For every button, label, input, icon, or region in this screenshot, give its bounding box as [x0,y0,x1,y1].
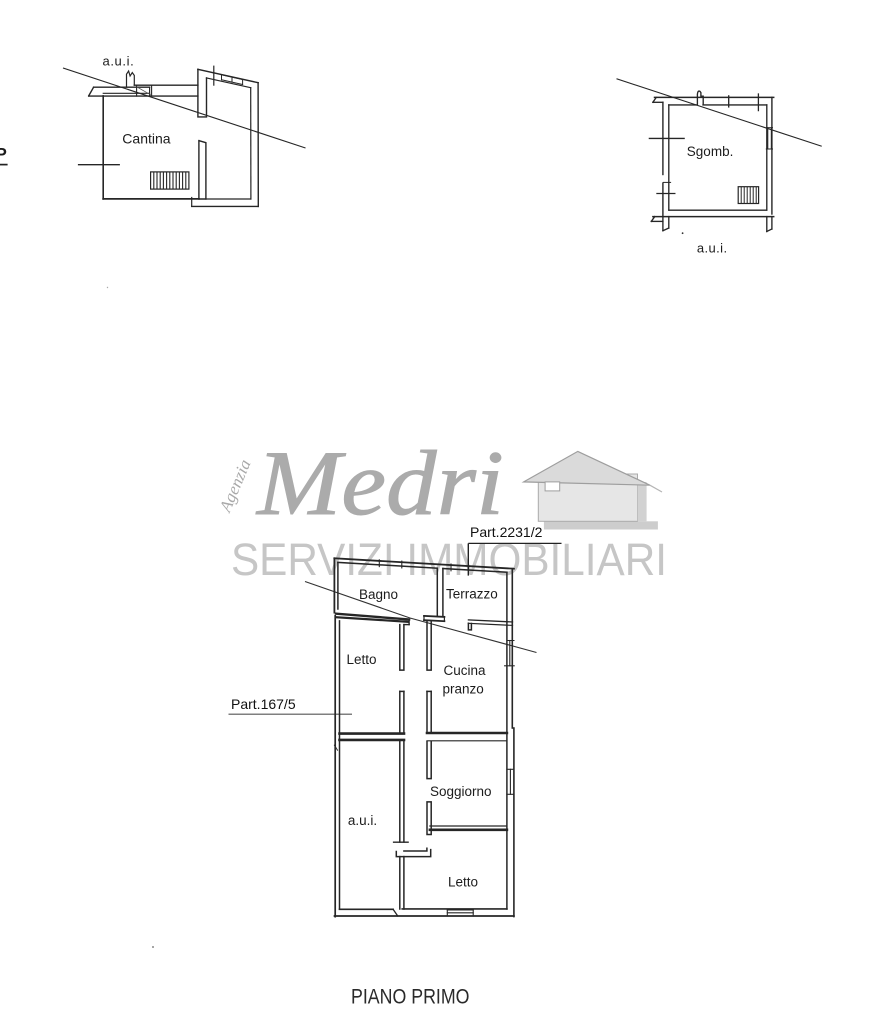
svg-text:P: P [0,145,7,164]
svg-text:Cantina: Cantina [122,131,170,147]
svg-text:pranzo: pranzo [443,682,484,697]
svg-text:Part.167/5: Part.167/5 [231,696,296,712]
svg-text:Part.2231/2: Part.2231/2 [470,524,543,540]
svg-text:a.u.i.: a.u.i. [348,813,377,828]
svg-text:Cucina: Cucina [444,663,487,678]
svg-text:Letto: Letto [347,652,377,667]
svg-text:SERVIZI IMMOBILIARI: SERVIZI IMMOBILIARI [231,534,667,585]
svg-text:a.u.i.: a.u.i. [697,241,728,256]
svg-text:PIANO PRIMO: PIANO PRIMO [351,986,470,1009]
svg-text:Bagno: Bagno [359,587,398,602]
svg-text:Letto: Letto [448,875,478,890]
svg-text:a.u.i.: a.u.i. [103,54,135,69]
svg-text:Terrazzo: Terrazzo [446,587,498,602]
svg-text:Agenzia: Agenzia [215,457,254,516]
svg-text:Soggiorno: Soggiorno [430,784,492,799]
svg-text:Medri: Medri [255,432,504,534]
svg-text:Sgomb.: Sgomb. [687,144,734,159]
